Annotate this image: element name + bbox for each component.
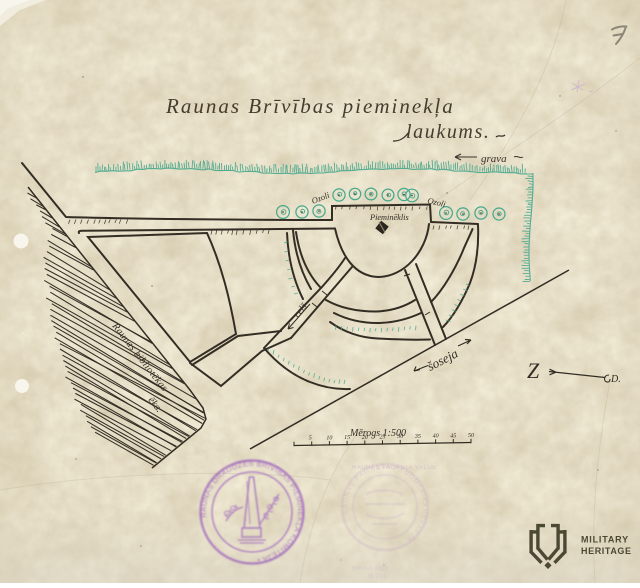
svg-text:RAUNAS PAGASTA VALDE: RAUNAS PAGASTA VALDE	[352, 465, 437, 471]
svg-text:grava: grava	[481, 153, 507, 165]
svg-text:10: 10	[326, 435, 332, 441]
svg-text:30: 30	[396, 434, 403, 440]
svg-text:N. 214: N. 214	[368, 574, 386, 580]
svg-text:Z: Z	[527, 358, 540, 383]
svg-text:5: 5	[309, 436, 312, 442]
svg-text:HERITAGE: HERITAGE	[581, 546, 632, 556]
svg-text:RAUNA 1936: RAUNA 1936	[352, 566, 388, 572]
svg-text:Raunas Brīvības pieminekļa: Raunas Brīvības pieminekļa	[165, 94, 455, 118]
svg-text:50: 50	[468, 433, 474, 439]
svg-text:laukums.: laukums.	[406, 121, 490, 143]
svg-text:25: 25	[380, 435, 386, 441]
svg-text:40: 40	[433, 433, 439, 440]
svg-text:Pieminēklis: Pieminēklis	[369, 213, 409, 222]
svg-text:15: 15	[344, 435, 350, 441]
svg-text:D.: D.	[610, 374, 621, 385]
svg-text:35: 35	[414, 434, 421, 440]
svg-text:MILITARY: MILITARY	[581, 535, 629, 545]
svg-text:20: 20	[362, 435, 368, 441]
svg-text:45: 45	[450, 432, 456, 439]
